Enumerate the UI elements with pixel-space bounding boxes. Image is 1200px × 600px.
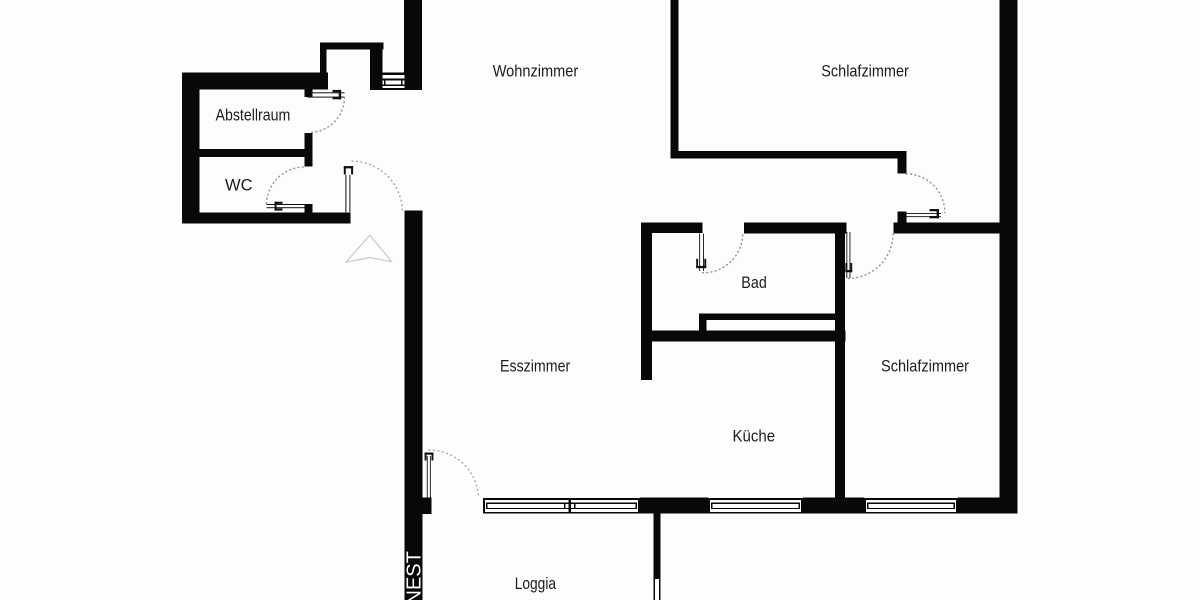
- svg-text:Esszimmer: Esszimmer: [500, 357, 570, 376]
- svg-text:Schlafzimmer: Schlafzimmer: [821, 62, 909, 81]
- svg-text:WC: WC: [225, 175, 253, 194]
- svg-text:Schlafzimmer: Schlafzimmer: [881, 357, 969, 376]
- svg-text:Wohnzimmer: Wohnzimmer: [493, 62, 579, 81]
- svg-text:Loggia: Loggia: [515, 574, 557, 593]
- svg-text:Küche: Küche: [733, 426, 776, 445]
- svg-text:NEST: NEST: [404, 551, 426, 600]
- svg-text:Bad: Bad: [741, 273, 767, 292]
- svg-text:Abstellraum: Abstellraum: [216, 106, 291, 125]
